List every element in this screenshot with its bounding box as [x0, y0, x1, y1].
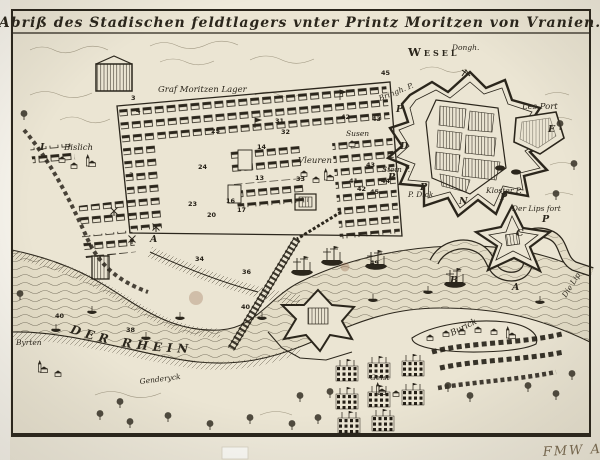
- scanned-print: Abriß des Stadischen feldtlagers vnter P…: [0, 0, 600, 460]
- scan-vignette: [0, 0, 600, 460]
- engraved-map: Abriß des Stadischen feldtlagers vnter P…: [0, 0, 600, 460]
